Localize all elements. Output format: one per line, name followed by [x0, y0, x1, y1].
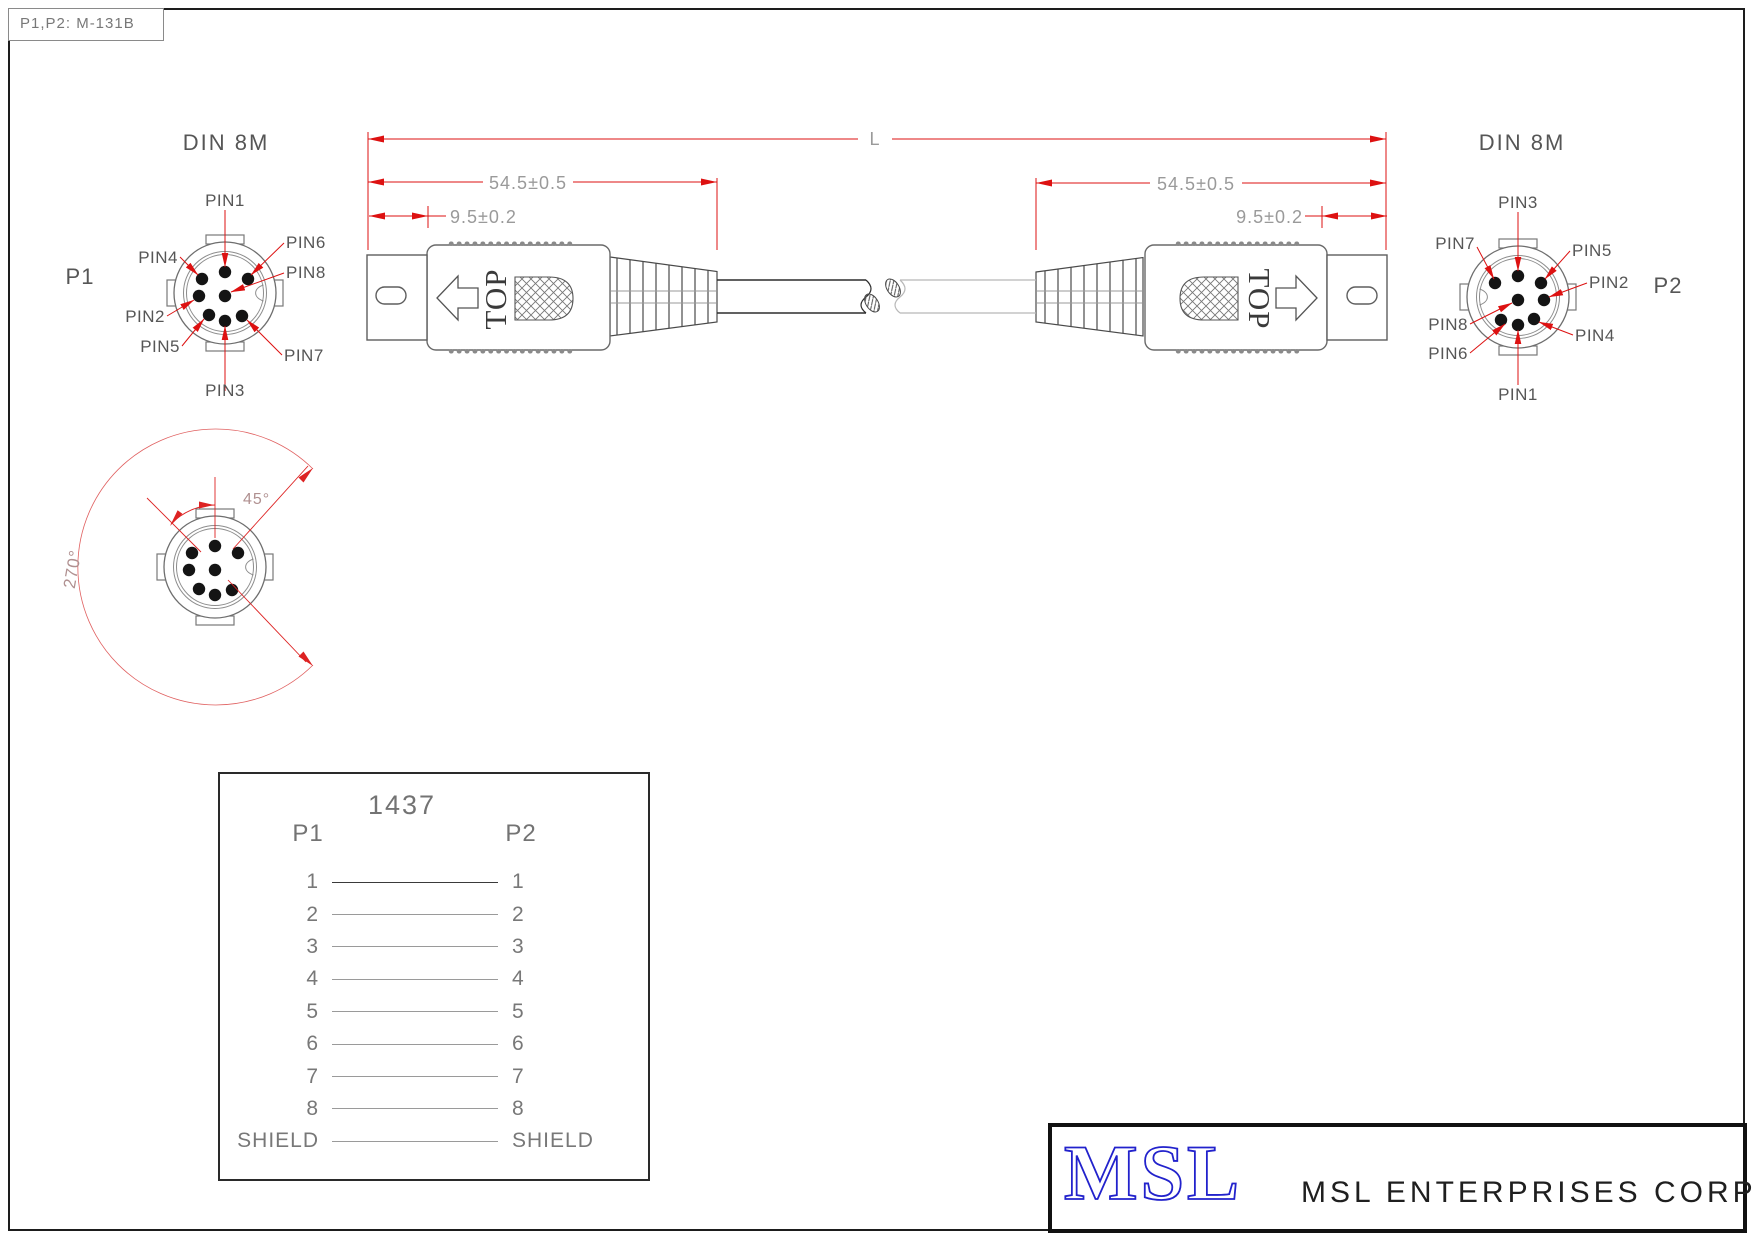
wiring-p1-pin: 3 [220, 935, 332, 959]
drawing-page: P1,P2: M-131B [0, 0, 1754, 1240]
dimension-texts: L 54.5±0.5 54.5±0.5 9.5±0.2 9.5±0.2 [450, 129, 1303, 227]
wiring-col-p2: P2 [481, 820, 561, 848]
wiring-row: 88 [220, 1093, 648, 1125]
wire-line [332, 1141, 498, 1142]
p2-pin1-label: PIN1 [1498, 385, 1538, 404]
wiring-p1-pin: 1 [220, 870, 332, 894]
p1-pin7-label: PIN7 [284, 346, 324, 365]
p1-pin8-label: PIN8 [286, 263, 326, 282]
wire-line [332, 979, 498, 980]
cable [717, 276, 1036, 314]
wiring-p1-pin: 7 [220, 1065, 332, 1089]
p1-pin6-label: PIN6 [286, 233, 326, 252]
wire-line [332, 1108, 498, 1109]
p2-pin7-label: PIN7 [1435, 234, 1475, 253]
wiring-row: SHIELDSHIELD [220, 1125, 648, 1157]
wiring-p1-pin: 6 [220, 1032, 332, 1056]
msl-logo-text: MSL [1064, 1131, 1242, 1216]
dim-body-length-right: 54.5±0.5 [1157, 174, 1235, 194]
wiring-col-p1: P1 [268, 820, 348, 848]
wiring-p2-pin: 6 [498, 1032, 648, 1056]
msl-logo: MSL [1062, 1131, 1287, 1217]
wire-line [332, 1011, 498, 1012]
wiring-row: 33 [220, 931, 648, 963]
plug-slot-right [1347, 287, 1377, 304]
wiring-row: 77 [220, 1060, 648, 1092]
p1-pin2-label: PIN2 [125, 307, 165, 326]
wiring-row: 11 [220, 866, 648, 898]
rotation-view: 45° 270° [60, 429, 313, 705]
strain-relief-left [610, 257, 717, 336]
wiring-table: 1437 P1 P2 11 22 33 44 55 66 77 88 SHIEL… [218, 772, 650, 1181]
connector-left: TOP [367, 244, 610, 352]
wiring-p1-shield: SHIELD [220, 1129, 332, 1153]
wiring-row: 66 [220, 1028, 648, 1060]
p2-pin3-label: PIN3 [1498, 193, 1538, 212]
p2-pin6-label: PIN6 [1428, 344, 1468, 363]
p1-designator: P1 [66, 264, 95, 289]
wiring-p2-pin: 2 [498, 903, 648, 927]
p1-pin1-label: PIN1 [205, 191, 245, 210]
wire-line [332, 914, 498, 915]
title-block: MSL MSL ENTERPRISES CORP. [1048, 1123, 1747, 1233]
rotation-angle-45: 45° [243, 491, 270, 508]
p2-designator: P2 [1654, 273, 1683, 298]
grip-crosshatch-right [1180, 277, 1238, 320]
p1-connector-type: DIN 8M [183, 130, 270, 155]
plug-slot-left [376, 287, 406, 304]
dim-overall-length: L [869, 129, 880, 149]
wiring-p1-pin: 2 [220, 903, 332, 927]
strain-relief-right [1036, 258, 1143, 337]
p1-pin4-label: PIN4 [138, 248, 178, 267]
wiring-row: 22 [220, 898, 648, 930]
wiring-p1-pin: 8 [220, 1097, 332, 1121]
wiring-p2-pin: 5 [498, 1000, 648, 1024]
p2-pinout: PIN3 PIN7 PIN5 PIN2 PIN8 PIN4 PIN6 PIN1 … [1428, 130, 1682, 404]
wiring-p1-pin: 4 [220, 967, 332, 991]
wiring-p1-pin: 5 [220, 1000, 332, 1024]
p2-pin4-label: PIN4 [1575, 326, 1615, 345]
dim-body-length-left: 54.5±0.5 [489, 173, 567, 193]
top-marking-left: TOP [478, 268, 513, 329]
wire-line [332, 946, 498, 947]
p2-pin8-label: PIN8 [1428, 315, 1468, 334]
p1-pin5-label: PIN5 [140, 337, 180, 356]
p1-pinout: PIN1 PIN4 PIN6 PIN8 PIN2 PIN5 PIN7 PIN3 … [66, 130, 326, 400]
wiring-p2-pin: 3 [498, 935, 648, 959]
top-marking-right: TOP [1242, 268, 1277, 329]
wiring-row: 55 [220, 996, 648, 1028]
p2-pin5-label: PIN5 [1572, 241, 1612, 260]
wiring-row: 44 [220, 963, 648, 995]
wiring-p2-shield: SHIELD [498, 1129, 648, 1153]
wiring-p2-pin: 1 [498, 870, 648, 894]
wire-line [332, 882, 498, 883]
p1-pin3-label: PIN3 [205, 381, 245, 400]
rotation-angle-270: 270° [60, 548, 86, 590]
wiring-rows: 11 22 33 44 55 66 77 88 SHIELDSHIELD [220, 866, 648, 1158]
wire-line [332, 1076, 498, 1077]
p2-connector-type: DIN 8M [1479, 130, 1566, 155]
wiring-part-number: 1437 [342, 790, 462, 821]
dim-tip-length-left: 9.5±0.2 [450, 207, 517, 227]
wire-line [332, 1044, 498, 1045]
company-name: MSL ENTERPRISES CORP. [1301, 1176, 1754, 1210]
grip-crosshatch-left [515, 277, 573, 320]
wiring-p2-pin: 8 [498, 1097, 648, 1121]
connector-right: TOP [1145, 244, 1387, 352]
dim-tip-length-right: 9.5±0.2 [1236, 207, 1303, 227]
wiring-p2-pin: 4 [498, 967, 648, 991]
wiring-p2-pin: 7 [498, 1065, 648, 1089]
cable-assembly: TOP TOP [367, 129, 1387, 351]
p2-pin2-label: PIN2 [1589, 273, 1629, 292]
